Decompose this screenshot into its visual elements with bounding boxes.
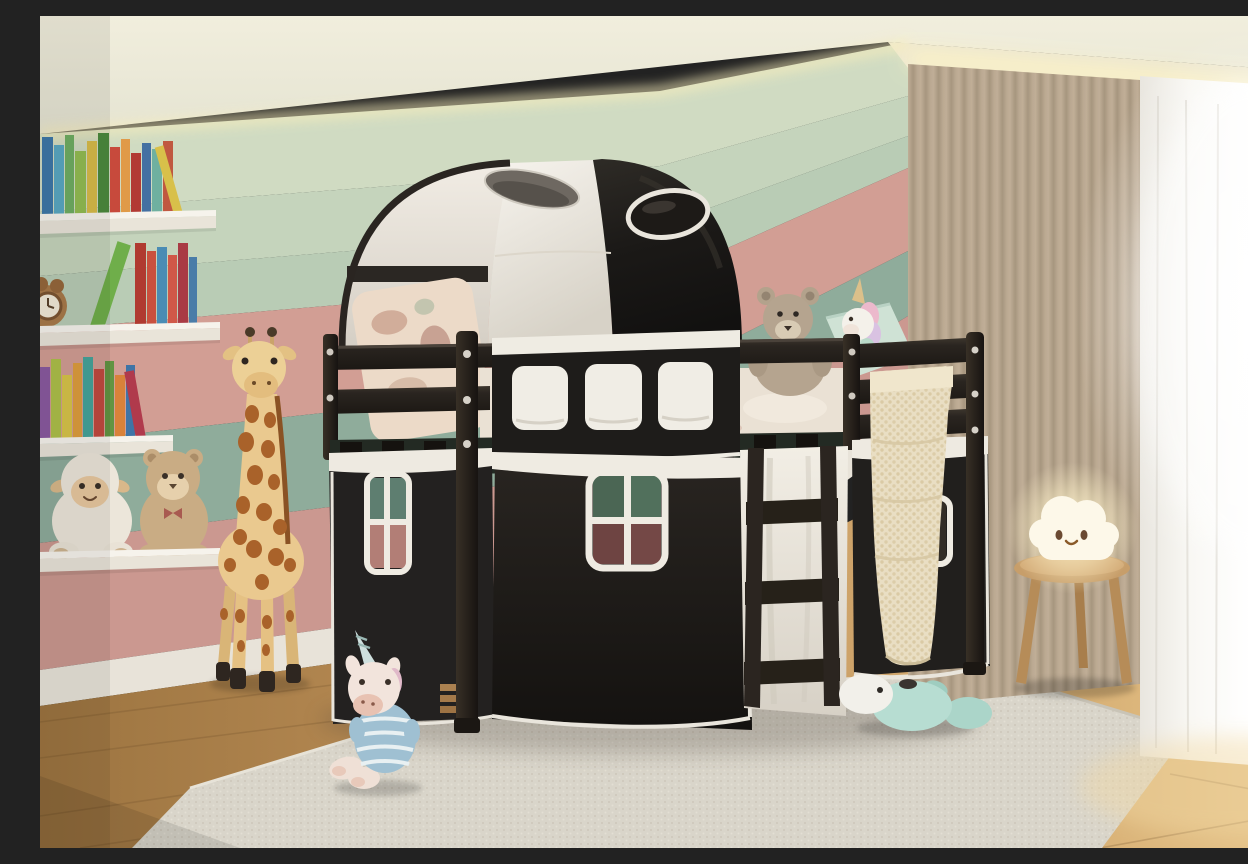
valance — [492, 330, 740, 459]
room-photo — [40, 16, 1248, 848]
cloud-lamp-eye — [1081, 530, 1088, 540]
cloud-lamp-eye — [1056, 530, 1063, 540]
bed-curtain-front — [492, 452, 752, 730]
curtain-left-window — [367, 474, 409, 572]
cloud-lamp — [1006, 462, 1138, 594]
curtain-front-window — [589, 472, 665, 568]
